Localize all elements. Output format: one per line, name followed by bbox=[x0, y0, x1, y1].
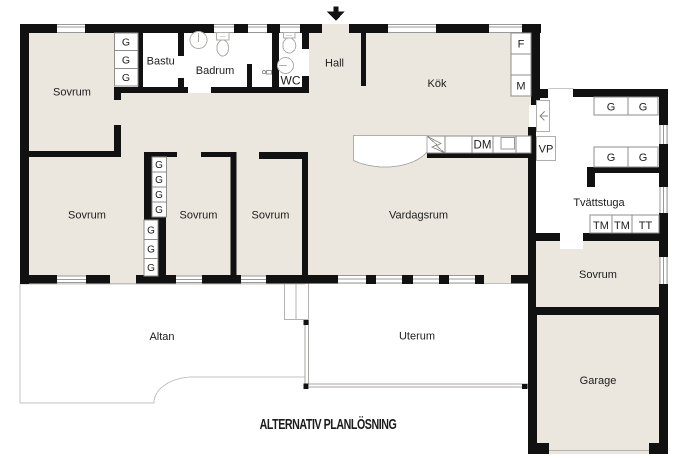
svg-text:Sovrum: Sovrum bbox=[53, 86, 91, 98]
svg-text:Vardagsrum: Vardagsrum bbox=[389, 209, 448, 221]
svg-text:ALTERNATIV PLANLÖSNING: ALTERNATIV PLANLÖSNING bbox=[260, 416, 397, 433]
svg-text:Altan: Altan bbox=[149, 331, 174, 343]
svg-text:Sovrum: Sovrum bbox=[252, 209, 290, 221]
svg-text:G: G bbox=[155, 190, 163, 201]
svg-text:WC: WC bbox=[281, 73, 301, 87]
svg-text:G: G bbox=[155, 160, 163, 171]
svg-text:G: G bbox=[155, 175, 163, 186]
svg-text:Tvättstuga: Tvättstuga bbox=[573, 197, 625, 209]
svg-text:Sovrum: Sovrum bbox=[579, 269, 617, 281]
svg-text:TM: TM bbox=[593, 220, 609, 232]
svg-text:G: G bbox=[122, 37, 130, 49]
svg-text:Hall: Hall bbox=[325, 57, 344, 69]
svg-text:G: G bbox=[147, 225, 155, 236]
svg-text:Sovrum: Sovrum bbox=[180, 209, 218, 221]
svg-text:G: G bbox=[155, 205, 163, 216]
svg-text:Kök: Kök bbox=[428, 78, 447, 90]
svg-text:Sovrum: Sovrum bbox=[68, 209, 106, 221]
svg-text:G: G bbox=[607, 152, 616, 164]
svg-text:G: G bbox=[122, 54, 130, 66]
svg-text:F: F bbox=[518, 38, 525, 50]
svg-text:G: G bbox=[147, 245, 155, 256]
svg-text:VP: VP bbox=[539, 143, 554, 155]
svg-text:Badrum: Badrum bbox=[196, 65, 235, 77]
svg-text:Bastu: Bastu bbox=[147, 56, 175, 68]
svg-text:G: G bbox=[607, 102, 616, 114]
svg-text:TM: TM bbox=[614, 220, 630, 232]
svg-text:Uterum: Uterum bbox=[399, 330, 435, 342]
svg-text:G: G bbox=[639, 102, 648, 114]
svg-text:DM: DM bbox=[474, 140, 492, 152]
svg-text:TT: TT bbox=[639, 220, 653, 232]
svg-text:G: G bbox=[639, 152, 648, 164]
svg-text:G: G bbox=[122, 72, 130, 84]
svg-text:M: M bbox=[516, 80, 525, 92]
svg-text:G: G bbox=[147, 263, 155, 274]
svg-text:Garage: Garage bbox=[580, 375, 617, 387]
